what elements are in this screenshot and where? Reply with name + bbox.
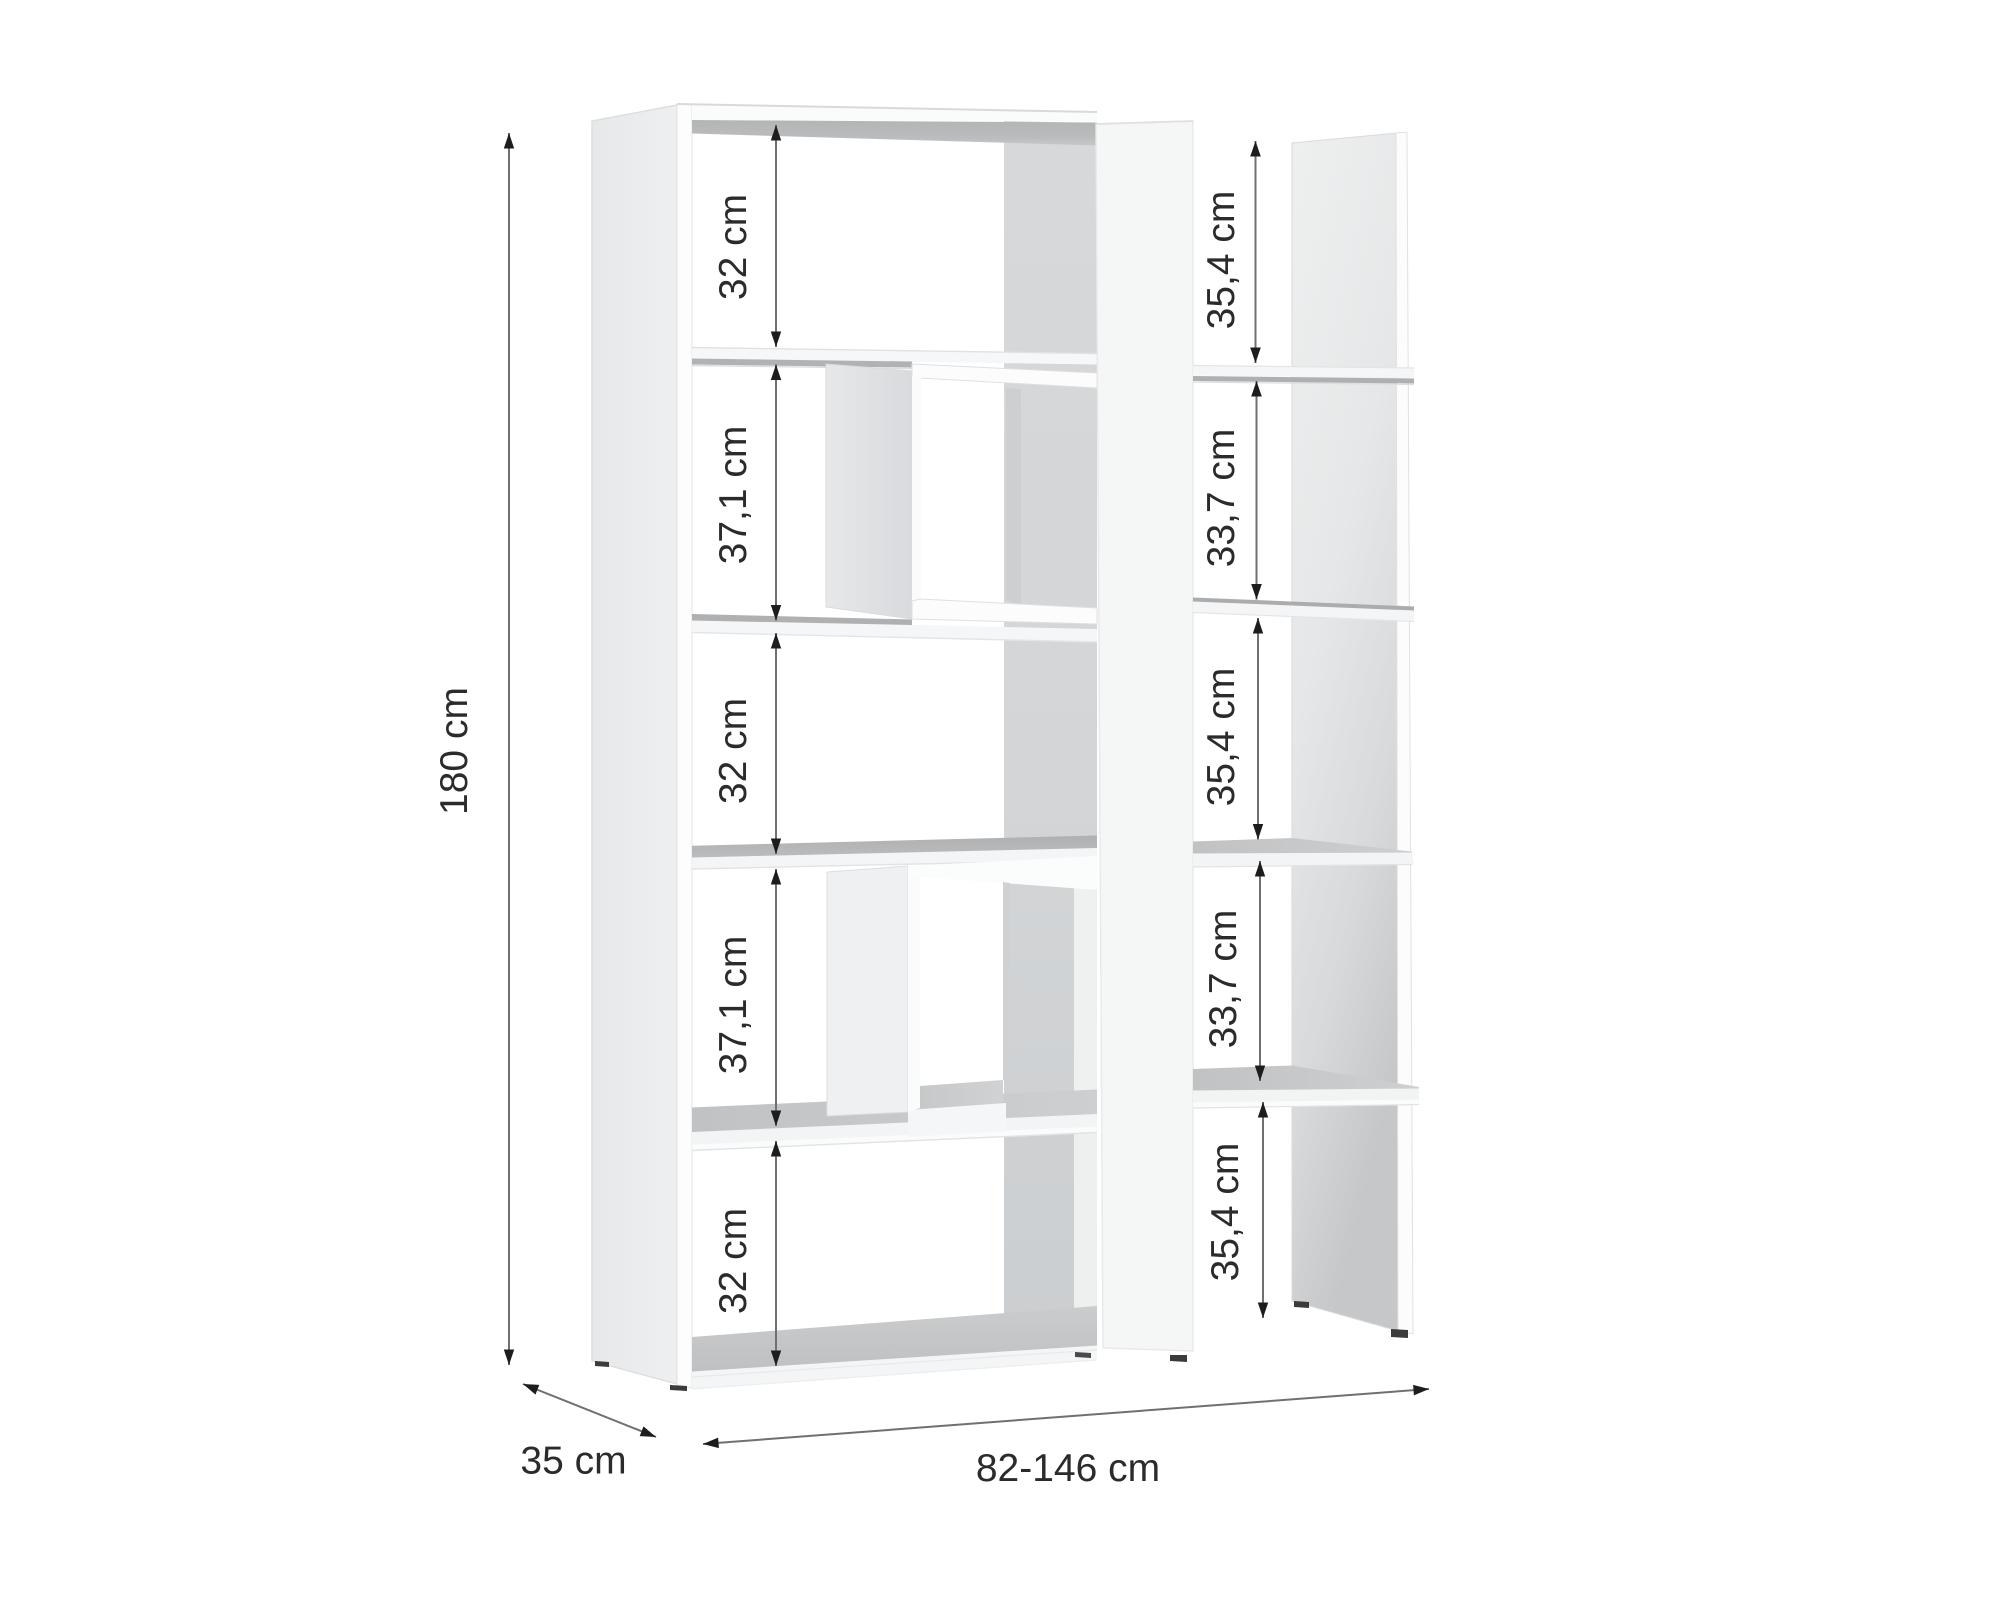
svg-text:32 cm: 32 cm [712, 698, 755, 804]
svg-text:35,4 cm: 35,4 cm [1204, 1143, 1247, 1282]
svg-text:33,7 cm: 33,7 cm [1200, 429, 1243, 568]
svg-text:37,1 cm: 37,1 cm [712, 936, 755, 1075]
svg-text:32 cm: 32 cm [712, 194, 755, 300]
svg-text:37,1 cm: 37,1 cm [712, 426, 755, 565]
svg-text:180 cm: 180 cm [433, 687, 476, 815]
svg-text:35 cm: 35 cm [520, 1440, 626, 1483]
svg-text:32 cm: 32 cm [712, 1208, 755, 1314]
svg-text:35,4 cm: 35,4 cm [1200, 668, 1243, 807]
svg-text:35,4 cm: 35,4 cm [1200, 191, 1243, 330]
svg-text:82-146 cm: 82-146 cm [976, 1447, 1160, 1490]
svg-text:33,7 cm: 33,7 cm [1202, 910, 1245, 1049]
